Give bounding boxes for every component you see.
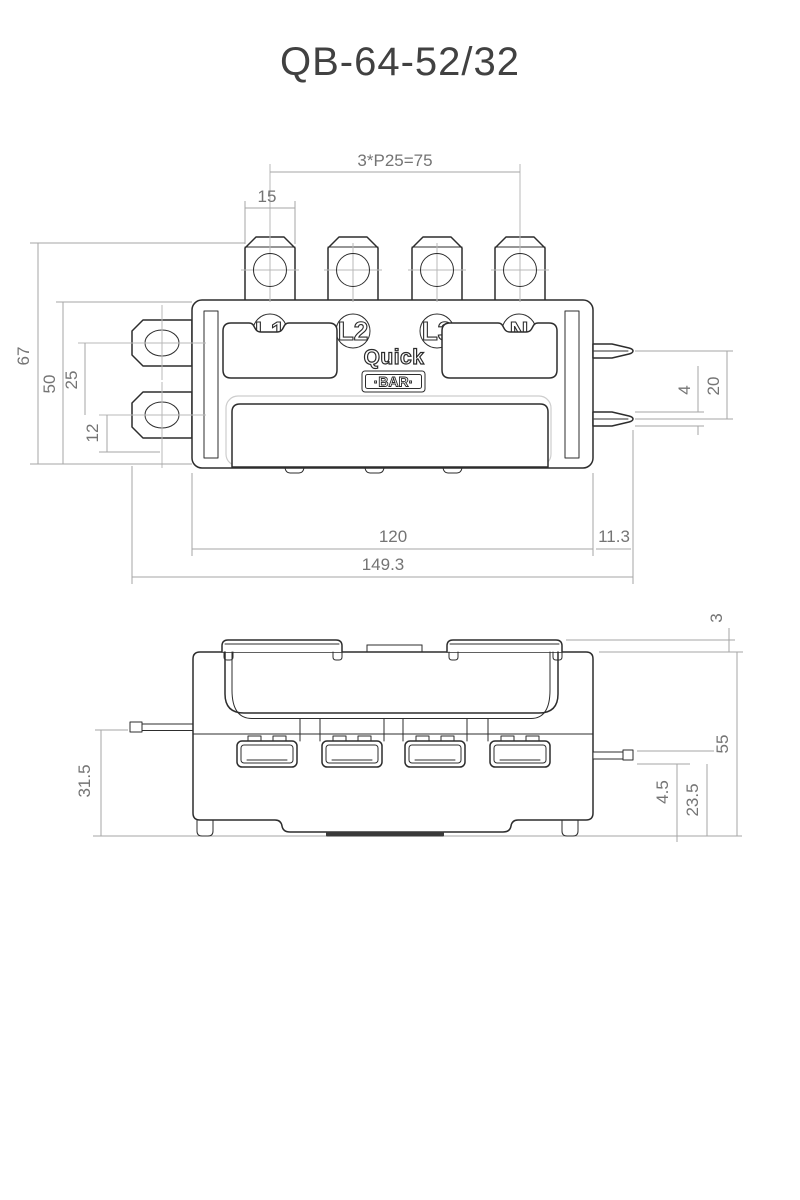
terminal-cover-right bbox=[442, 323, 557, 378]
drawing-sheet: QB-64-52/32 bbox=[0, 0, 800, 1200]
slot-1 bbox=[237, 736, 297, 767]
slot-3 bbox=[405, 736, 465, 767]
technical-drawing: L1 L2 L3 N Quick ·BAR· bbox=[0, 0, 800, 1200]
dim-total-length: 149.3 bbox=[362, 555, 405, 574]
dim-body-length: 120 bbox=[379, 527, 407, 546]
dim-total-height: 67 bbox=[14, 347, 33, 366]
dim-side-total-height: 55 bbox=[713, 735, 732, 754]
dim-pin-pitch: 20 bbox=[704, 377, 723, 396]
dim-hole-width: 15 bbox=[258, 187, 277, 206]
dim-pitch: 3*P25=75 bbox=[357, 151, 432, 170]
dim-pin-base-height: 23.5 bbox=[683, 783, 702, 816]
slot-2 bbox=[322, 736, 382, 767]
foot-left bbox=[197, 820, 213, 836]
top-view: L1 L2 L3 N Quick ·BAR· bbox=[14, 151, 733, 584]
dim-tab-offset: 12 bbox=[83, 424, 102, 443]
label-l2: L2 bbox=[338, 316, 368, 346]
molded-text-strip bbox=[326, 832, 444, 837]
brand-word-quick: Quick bbox=[364, 346, 425, 369]
blade-pin-upper bbox=[593, 344, 633, 358]
side-pin-left bbox=[130, 722, 193, 732]
dim-pin-offset: 4.5 bbox=[653, 780, 672, 804]
screw-terminals bbox=[245, 237, 545, 300]
tub-rim bbox=[367, 645, 422, 652]
dim-tab-pitch: 25 bbox=[62, 371, 81, 390]
slot-4 bbox=[490, 736, 550, 767]
dim-body-height: 50 bbox=[40, 375, 59, 394]
dim-cover-height: 3 bbox=[707, 613, 726, 622]
brand-word-bar: ·BAR· bbox=[374, 374, 414, 390]
blade-pin-lower bbox=[593, 412, 633, 426]
terminal-cover-left bbox=[223, 323, 337, 378]
side-view: 3 55 31.5 4.5 23.5 bbox=[75, 613, 743, 842]
dim-pin-width: 4 bbox=[675, 385, 694, 394]
side-pin-right bbox=[593, 750, 633, 760]
dim-pin-overhang: 11.3 bbox=[598, 527, 630, 546]
foot-right bbox=[562, 820, 578, 836]
dim-pin-height: 31.5 bbox=[75, 764, 94, 797]
lower-cover bbox=[226, 396, 551, 467]
